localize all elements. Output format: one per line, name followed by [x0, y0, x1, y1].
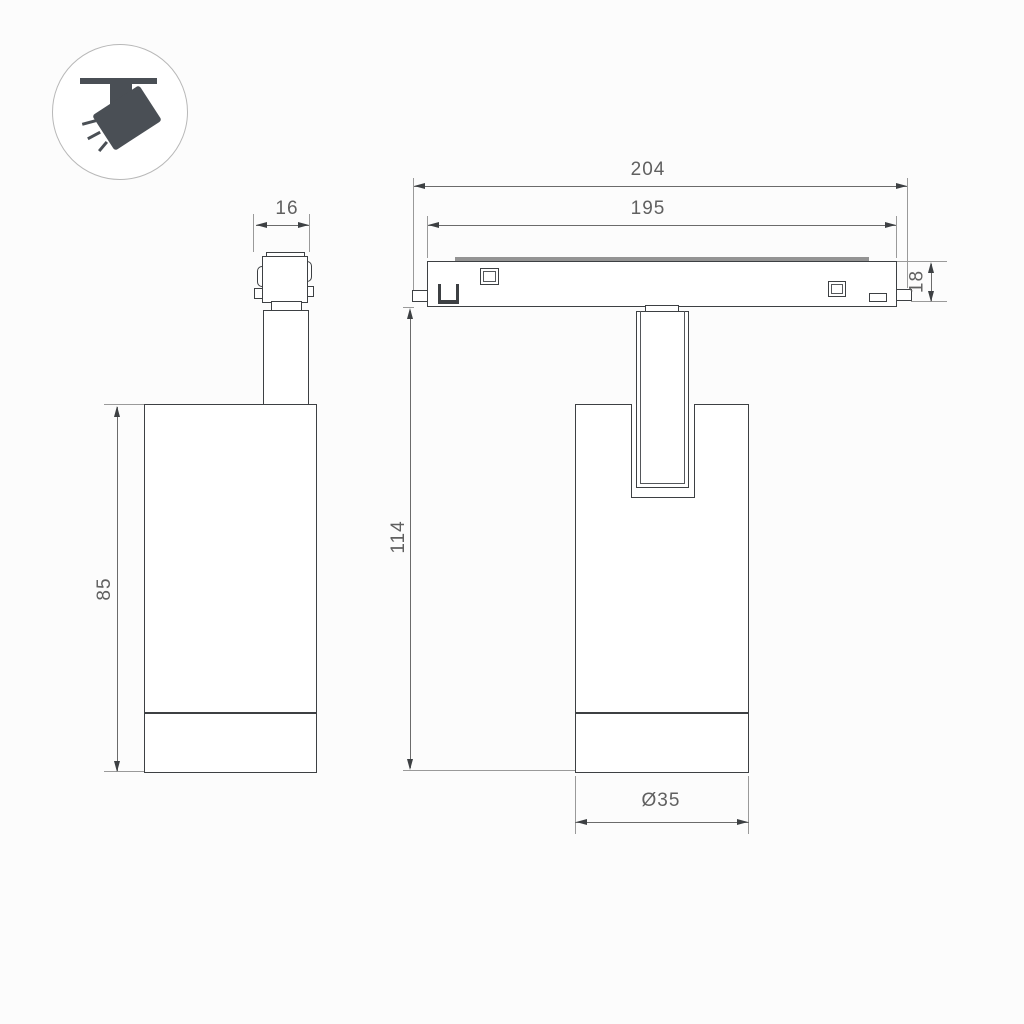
- dim-114-arrow-down: [407, 759, 413, 770]
- dim-114-line: [410, 311, 411, 768]
- track-contact-inner: [831, 284, 843, 294]
- icon-lamp-head: [92, 85, 162, 151]
- track-contact-inner: [483, 271, 496, 282]
- dim-195-label: 195: [621, 199, 675, 219]
- dim-35-arrow-left: [576, 819, 587, 825]
- lamp-trim-line-front: [576, 712, 748, 714]
- dim-35-arrow-right: [737, 819, 748, 825]
- dim-85-line: [117, 407, 118, 771]
- dim-195-ext-right: [896, 216, 897, 258]
- dim-16-ext-left: [253, 214, 254, 252]
- dim-204-line: [414, 186, 907, 187]
- lamp-arm-front-inner: [640, 311, 685, 484]
- dim-35-ext-left: [575, 776, 576, 834]
- icon-light-ray: [87, 131, 101, 140]
- dim-195-line: [428, 225, 896, 226]
- icon-light-ray: [98, 141, 108, 152]
- dim-35-ext-right: [748, 776, 749, 834]
- track-tab-left: [412, 290, 428, 302]
- dim-85-ext-top: [104, 404, 144, 405]
- dim-85-arrow-down: [114, 761, 120, 772]
- track-contact-right: [828, 281, 846, 297]
- dim-85-arrow-up: [114, 406, 120, 417]
- dim-114-arrow-up: [407, 308, 413, 319]
- track-spotlight-icon: [52, 44, 188, 180]
- track-clip: [438, 284, 459, 304]
- dim-195-arrow-left: [428, 222, 439, 228]
- dim-204-ext-left: [413, 178, 414, 290]
- dim-35-label: Ø35: [628, 791, 694, 811]
- dim-18-ext-top: [897, 261, 947, 262]
- dim-85-ext-bottom: [104, 771, 144, 772]
- dim-18-label: 18: [908, 266, 927, 298]
- dim-204-arrow-right: [896, 183, 907, 189]
- dim-195-arrow-right: [885, 222, 896, 228]
- dim-18-arrow-up: [928, 262, 934, 273]
- dim-35-line: [575, 822, 749, 823]
- dim-16-label: 16: [268, 199, 306, 219]
- dim-85-label: 85: [95, 569, 115, 609]
- dimension-drawing: 16 85 204 195 18: [0, 0, 1024, 1024]
- dim-18-arrow-down: [928, 291, 934, 302]
- dim-16-arrow-left: [256, 222, 267, 228]
- lamp-body-side: [144, 404, 317, 773]
- dim-204-arrow-left: [414, 183, 425, 189]
- dim-114-ext-bottom: [403, 770, 575, 771]
- track-connector: [262, 256, 308, 303]
- dim-114-label: 114: [389, 512, 409, 562]
- lamp-arm-side: [263, 310, 309, 406]
- icon-light-ray: [82, 119, 96, 126]
- track-slot: [869, 293, 887, 302]
- dim-16-arrow-right: [298, 222, 309, 228]
- dim-16-ext-right: [309, 214, 310, 252]
- track-contact-left: [480, 268, 499, 285]
- dim-204-label: 204: [621, 160, 675, 180]
- lamp-trim-line-side: [145, 712, 316, 714]
